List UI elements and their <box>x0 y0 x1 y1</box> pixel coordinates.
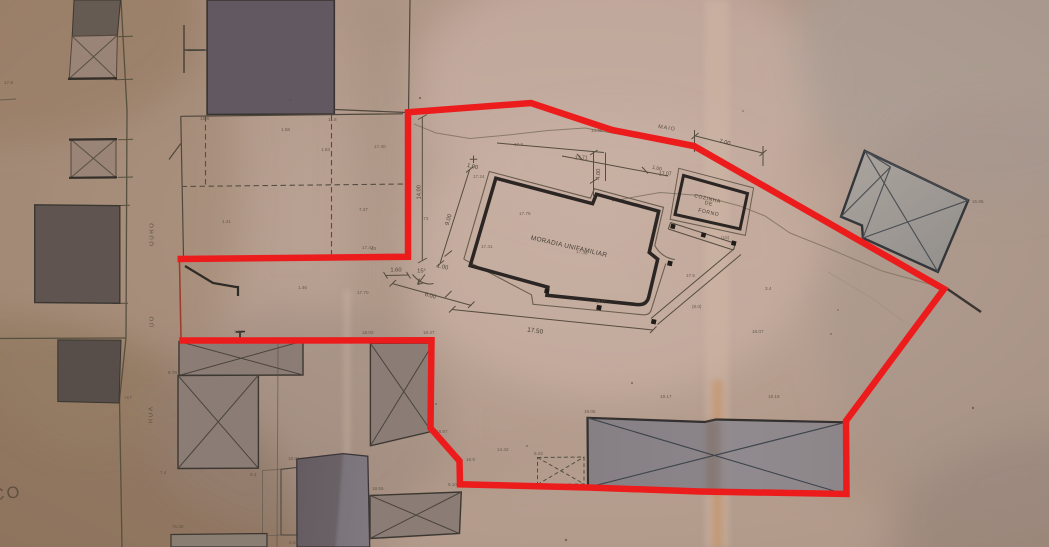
svg-text:17.71: 17.71 <box>575 156 588 162</box>
svg-text:1.46: 1.46 <box>298 285 307 290</box>
svg-text:19.18: 19.18 <box>768 394 780 399</box>
svg-text:18.9: 18.9 <box>466 457 475 462</box>
svg-text:1.58: 1.58 <box>281 127 290 132</box>
svg-text:CO: CO <box>0 483 23 504</box>
svg-text:OURO: OURO <box>150 222 156 246</box>
svg-text:17.70: 17.70 <box>357 290 369 295</box>
svg-text:7.27: 7.27 <box>359 207 368 212</box>
svg-text:75.35: 75.35 <box>172 524 184 529</box>
svg-text:15°: 15° <box>417 269 426 275</box>
svg-text:15.8: 15.8 <box>200 116 209 121</box>
svg-text:14.42: 14.42 <box>497 447 509 452</box>
svg-text:1.60: 1.60 <box>390 268 401 274</box>
svg-text:19.34: 19.34 <box>288 456 300 461</box>
svg-text:18.55: 18.55 <box>372 486 384 491</box>
svg-text:9.10: 9.10 <box>448 482 457 487</box>
svg-text:.73: .73 <box>422 216 429 221</box>
svg-text:17.41: 17.41 <box>481 244 493 249</box>
svg-text:14.00: 14.00 <box>417 185 423 200</box>
svg-text:18.47: 18.47 <box>423 330 435 335</box>
svg-text:17.40: 17.40 <box>374 144 386 149</box>
svg-text:18.07: 18.07 <box>752 329 764 334</box>
svg-text:1.63: 1.63 <box>321 147 330 152</box>
svg-text:18.02: 18.02 <box>362 330 374 335</box>
svg-text:5.02: 5.02 <box>534 451 543 456</box>
svg-text:43: 43 <box>371 246 377 251</box>
svg-text:17.75: 17.75 <box>519 211 531 216</box>
svg-text:9.78: 9.78 <box>168 370 177 375</box>
svg-text:1.41: 1.41 <box>222 219 231 224</box>
svg-text:19.17: 19.17 <box>660 394 672 399</box>
svg-text:17.3: 17.3 <box>514 142 523 147</box>
svg-text:DO: DO <box>150 315 156 327</box>
svg-text:15.85: 15.85 <box>972 199 984 204</box>
svg-text:+17: +17 <box>124 395 132 400</box>
svg-text:3.4: 3.4 <box>765 286 772 291</box>
svg-text:(15): (15) <box>721 235 730 240</box>
svg-text:(9.1): (9.1) <box>596 299 606 304</box>
svg-text:17.5: 17.5 <box>686 273 695 278</box>
svg-text:(8.0): (8.0) <box>692 304 702 309</box>
svg-text:RUA: RUA <box>149 406 155 423</box>
svg-text:9.34: 9.34 <box>289 540 298 545</box>
svg-text:11.8: 11.8 <box>328 117 337 122</box>
svg-text:1.50: 1.50 <box>234 329 243 334</box>
svg-text:9.3: 9.3 <box>250 472 257 477</box>
svg-text:17.8: 17.8 <box>4 80 13 85</box>
svg-text:17.24: 17.24 <box>473 174 485 179</box>
svg-text:19.05: 19.05 <box>584 409 596 414</box>
svg-text:4.00: 4.00 <box>596 168 603 180</box>
svg-text:7.4: 7.4 <box>160 470 167 475</box>
